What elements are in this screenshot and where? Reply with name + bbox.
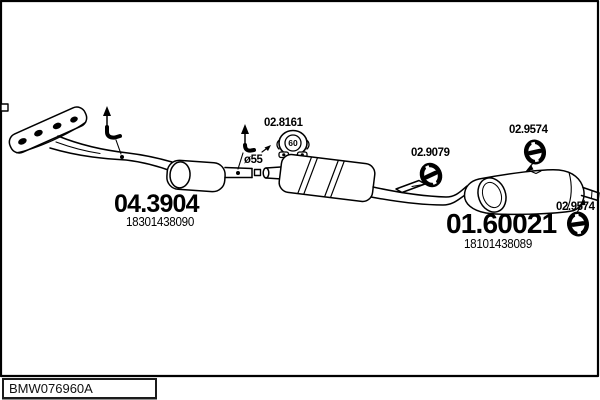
exhaust-diagram: 60 [0, 0, 600, 400]
rear-section-oem-number: 18101438089 [464, 238, 532, 251]
front-section-code: 04.3904 [114, 192, 199, 217]
clamp-icon: 60 [277, 131, 309, 158]
footer-code-label: BMW076960A [9, 381, 93, 396]
footer-code-box: BMW076960A [2, 378, 157, 399]
rear-connecting-pipe [371, 186, 467, 205]
rubber-hanger-icon [522, 137, 549, 166]
front-section-oem-number: 18301438090 [126, 216, 194, 229]
rear-hanger-code-label: 02.9574 [556, 200, 595, 212]
front-pipe [50, 136, 174, 172]
pipe-gap-marker [255, 170, 261, 176]
diameter-arrow-icon [262, 145, 271, 152]
rubber-hanger-icon [565, 210, 590, 238]
mid-hanger-code-label: 02.9079 [411, 146, 450, 158]
clamp-size-label: 60 [288, 138, 298, 148]
clamp-code-label: 02.8161 [264, 116, 303, 128]
middle-muffler [278, 153, 376, 202]
parts-diagram-page: 60 [0, 0, 600, 400]
catalytic-converter [166, 160, 226, 193]
pipe-diameter-label: ø55 [244, 153, 263, 165]
top-hanger-code-label: 02.9574 [509, 123, 548, 135]
rear-section-code: 01.60021 [446, 210, 556, 238]
left-edge-marker [1, 104, 8, 111]
pipe-hanger-bracket [396, 181, 425, 193]
